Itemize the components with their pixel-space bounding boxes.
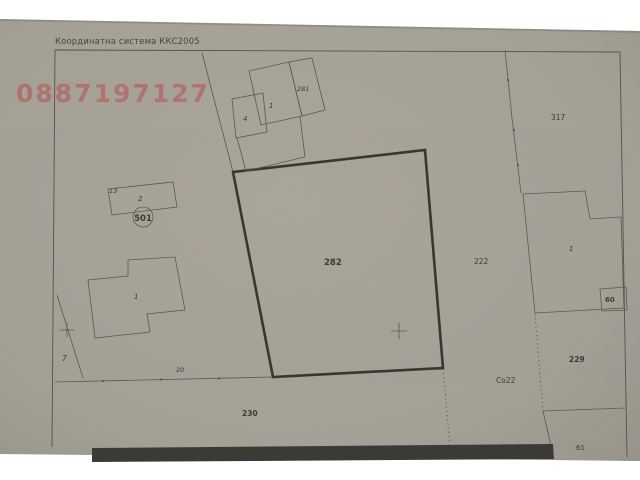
boundary-tick-dot [513, 129, 515, 131]
boundary-tick-dot [517, 164, 519, 166]
label-building-60: 60 [605, 296, 615, 304]
label-parcel-230: 230 [242, 409, 258, 418]
label-parcel-282: 282 [324, 258, 342, 268]
phone-watermark: 0887197127 [16, 79, 210, 108]
label-building-281: 281 [297, 85, 309, 93]
scanned-cadastral-document: Координатна система ККС2005 0887197127 2… [0, 0, 640, 480]
label-parcel-229: 229 [569, 355, 585, 364]
boundary-tick-dot [218, 378, 220, 380]
label-parcel-61: 61 [576, 444, 585, 452]
label-parcel-317: 317 [551, 113, 566, 122]
label-parcel-222: 222 [474, 257, 489, 266]
label-point-501: 501 [134, 214, 152, 224]
label-building-1-right: 1 [569, 245, 573, 253]
label-building-1-top: 1 [269, 102, 273, 110]
paper-shading [0, 0, 640, 480]
label-building-4: 4 [243, 115, 247, 123]
boundary-tick-dot [160, 379, 162, 381]
coordinate-system-label: Координатна система ККС2005 [55, 36, 200, 46]
label-point-13: 13 [109, 187, 117, 195]
label-road-20: 20 [176, 366, 184, 374]
label-building-2: 2 [138, 195, 143, 203]
boundary-tick-dot [507, 79, 509, 81]
cadastral-map-canvas: Координатна система ККС2005 0887197127 2… [0, 0, 640, 480]
label-building-1-left: 1 [134, 293, 138, 301]
label-parcel-7: 7 [62, 354, 67, 363]
label-soil-code: Со22 [496, 376, 516, 385]
boundary-tick-dot [102, 380, 104, 382]
